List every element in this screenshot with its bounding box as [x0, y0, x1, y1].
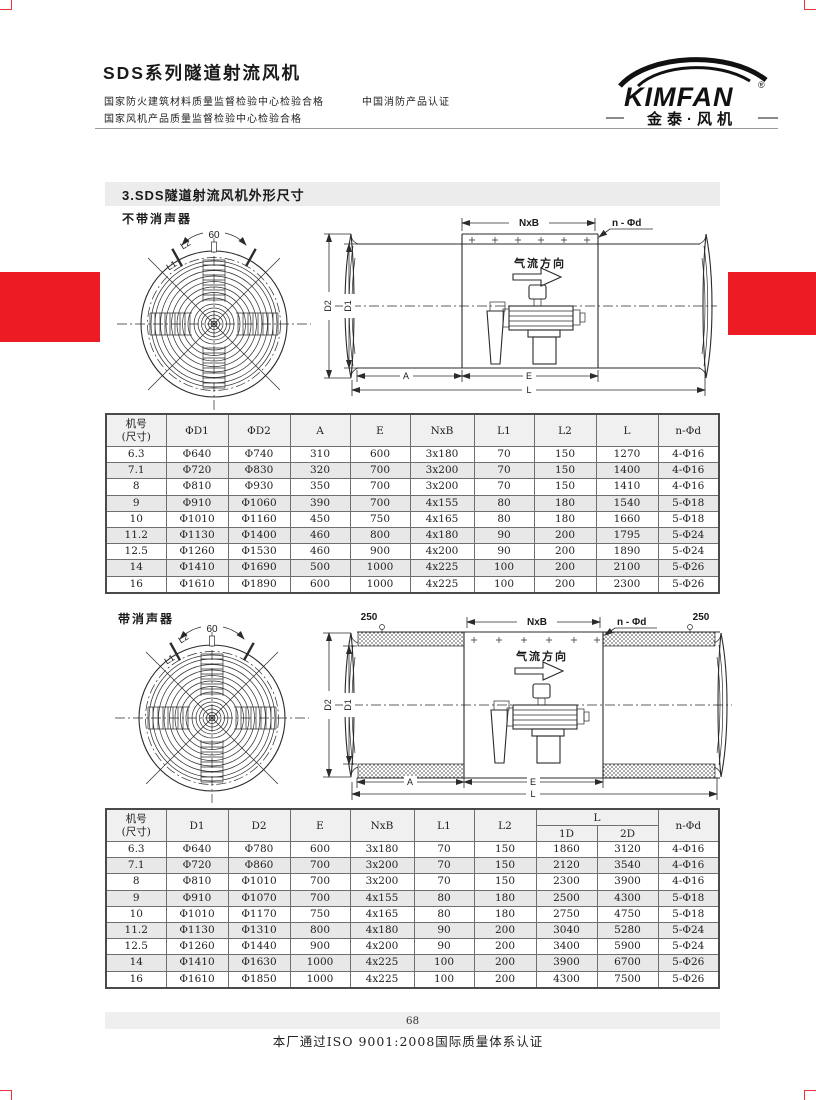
fan-front-view	[117, 230, 311, 411]
table-cell: 200	[474, 922, 536, 938]
table-cell: 3x200	[410, 463, 474, 479]
dim-d2-label: D2	[323, 699, 333, 711]
crop-mark-bottom-left	[0, 1090, 12, 1100]
table-cell: Φ1260	[166, 544, 228, 560]
table-header-row: 机号 (尺寸) ΦD1 ΦD2 A E NxB L1 L2 L n-Φd	[106, 414, 719, 447]
table-cell: 700	[290, 890, 350, 906]
table-cell: 90	[474, 544, 534, 560]
table-cell: Φ1630	[228, 955, 290, 971]
table-cell: 4x200	[350, 939, 414, 955]
table-row: 10Φ1010Φ11604507504x1658018016605-Φ18	[106, 511, 719, 527]
table-cell: Φ1060	[228, 495, 290, 511]
table-cell: 1270	[596, 447, 658, 463]
table-cell: 200	[474, 971, 536, 988]
table-cell: Φ1010	[166, 906, 228, 922]
table-cell: 1660	[596, 511, 658, 527]
table-cell: 8	[106, 874, 166, 890]
page-title: SDS系列隧道射流风机	[103, 60, 301, 85]
table-cell: 16	[106, 576, 166, 593]
header-divider	[95, 128, 778, 129]
table-cell: 4750	[597, 906, 658, 922]
table-cell: 7.1	[106, 858, 166, 874]
table-cell: 4x225	[350, 971, 414, 988]
table-cell: Φ810	[166, 874, 228, 890]
logo-chinese-text: 金泰·风机	[646, 110, 737, 128]
table-cell: 100	[414, 971, 474, 988]
dim-e-label: E	[530, 777, 536, 787]
table-cell: 11.2	[106, 922, 166, 938]
col-header-d2: D2	[228, 809, 290, 842]
table-cell: Φ1440	[228, 939, 290, 955]
table-row: 16Φ1610Φ185010004x225100200430075005-Φ26	[106, 971, 719, 988]
dim-e-label: E	[526, 371, 532, 381]
table-cell: 180	[534, 511, 596, 527]
drawing-with-silencer: NxB n - Φd 250 250 气流方向 D2 D1 A	[105, 608, 740, 803]
table-cell: 16	[106, 971, 166, 988]
table-cell: 460	[290, 544, 350, 560]
dim-nxb-label: NxB	[519, 218, 539, 229]
lifting-lug-right	[688, 625, 693, 630]
silencer-length-right-label: 250	[693, 612, 710, 623]
dim-d1-label: D1	[343, 300, 353, 312]
table-cell: 390	[290, 495, 350, 511]
table-cell: 9	[106, 495, 166, 511]
table-cell: Φ1610	[166, 971, 228, 988]
table-cell: 1890	[596, 544, 658, 560]
col-header-1d: 1D	[536, 826, 597, 842]
table-cell: 700	[290, 858, 350, 874]
table-cell: Φ910	[166, 495, 228, 511]
dim-l-label: L	[530, 789, 535, 799]
table-cell: 3x180	[410, 447, 474, 463]
silencer-lining-left-bottom	[358, 764, 464, 778]
table-cell: 5-Φ24	[658, 922, 719, 938]
table-cell: Φ1010	[228, 874, 290, 890]
table-cell: Φ1310	[228, 922, 290, 938]
fan-front-view-silencer	[115, 624, 309, 803]
col-header-l1: L1	[474, 414, 534, 447]
col-header-d2: ΦD2	[228, 414, 290, 447]
table-cell: 5-Φ26	[658, 560, 719, 576]
table-cell: 200	[534, 576, 596, 593]
table-row: 6.3Φ640Φ7403106003x1807015012704-Φ16	[106, 447, 719, 463]
table-cell: 310	[290, 447, 350, 463]
table-row: 10Φ1010Φ11707504x16580180275047505-Φ18	[106, 906, 719, 922]
table-cell: 4x225	[410, 560, 474, 576]
cert-china-fire-text: 中国消防产品认证	[362, 97, 450, 108]
col-header-e: E	[290, 809, 350, 842]
table-row: 9Φ910Φ10707004x15580180250043005-Φ18	[106, 890, 719, 906]
table-cell: 2100	[596, 560, 658, 576]
table-cell: 4-Φ16	[658, 858, 719, 874]
table-cell: 5-Φ26	[658, 955, 719, 971]
table-cell: 1410	[596, 479, 658, 495]
cert-fire-text: 国家防火建筑材料质量监督检验中心检验合格	[104, 97, 324, 108]
page-number-band: 68	[105, 1012, 720, 1029]
table-cell: 10	[106, 906, 166, 922]
table-row: 12.5Φ1260Φ14409004x20090200340059005-Φ24	[106, 939, 719, 955]
table-cell: 1000	[290, 971, 350, 988]
table-cell: Φ910	[166, 890, 228, 906]
fan-side-view: NxB n - Φd 气流方向 D2 D1 A E L	[322, 216, 717, 396]
section-title: 3.SDS隧道射流风机外形尺寸	[105, 185, 305, 204]
dim-nxb-label: NxB	[527, 617, 547, 628]
table-cell: 200	[534, 560, 596, 576]
table-cell: 180	[474, 906, 536, 922]
table-cell: 700	[350, 463, 410, 479]
table-cell: 1000	[350, 576, 410, 593]
silencer-lining-right-top	[603, 632, 715, 646]
table-cell: 150	[474, 874, 536, 890]
col-header-l2: L2	[534, 414, 596, 447]
kimfan-logo: KIMFAN ® 金泰·风机	[606, 50, 778, 130]
table-cell: 3900	[597, 874, 658, 890]
table-cell: 70	[414, 858, 474, 874]
table-cell: 100	[474, 560, 534, 576]
dimensions-table-with-silencer: 机号 (尺寸) D1 D2 E NxB L1 L2 L n-Φd 1D 2D 6…	[105, 808, 720, 989]
table-cell: 90	[414, 922, 474, 938]
table-cell: 5-Φ18	[658, 890, 719, 906]
table-cell: 3120	[597, 842, 658, 858]
table-cell: Φ740	[228, 447, 290, 463]
table-row: 8Φ810Φ9303507003x2007015014104-Φ16	[106, 479, 719, 495]
lifting-lug-left	[380, 625, 385, 630]
crop-mark-top-left	[0, 0, 12, 10]
table-cell: 3x200	[410, 479, 474, 495]
table-cell: 1000	[290, 955, 350, 971]
table-row: 7.1Φ720Φ8303207003x2007015014004-Φ16	[106, 463, 719, 479]
airflow-arrow	[513, 268, 561, 286]
table-header-row: 机号 (尺寸) D1 D2 E NxB L1 L2 L n-Φd	[106, 809, 719, 826]
dim-d2-label: D2	[323, 300, 333, 312]
table-cell: 4-Φ16	[658, 842, 719, 858]
silencer-lining-right-bottom	[603, 764, 715, 778]
table-row: 11.2Φ1130Φ13108004x18090200304052805-Φ24	[106, 922, 719, 938]
airflow-direction-label: 气流方向	[513, 256, 566, 270]
col-header-nxb: NxB	[350, 809, 414, 842]
table-cell: 4x200	[410, 544, 474, 560]
table-cell: 150	[474, 858, 536, 874]
table-row: 7.1Φ720Φ8607003x20070150212035404-Φ16	[106, 858, 719, 874]
table-cell: Φ1410	[166, 955, 228, 971]
table-cell: 80	[414, 890, 474, 906]
airflow-arrow	[515, 662, 563, 680]
certification-line-1: 国家防火建筑材料质量监督检验中心检验合格中国消防产品认证	[104, 93, 450, 108]
table-row: 14Φ1410Φ163010004x225100200390067005-Φ26	[106, 955, 719, 971]
col-header-n-phi-d: n-Φd	[658, 809, 719, 842]
table-cell: 2750	[536, 906, 597, 922]
table-cell: Φ1130	[166, 527, 228, 543]
table-cell: 750	[350, 511, 410, 527]
section-title-bar: 3.SDS隧道射流风机外形尺寸	[105, 182, 720, 206]
table-cell: Φ1400	[228, 527, 290, 543]
registered-mark: ®	[758, 80, 765, 90]
table-cell: Φ1850	[228, 971, 290, 988]
dimensions-table-without-silencer: 机号 (尺寸) ΦD1 ΦD2 A E NxB L1 L2 L n-Φd 6.3…	[105, 413, 720, 594]
table-cell: Φ930	[228, 479, 290, 495]
drawing-without-silencer: NxB n - Φd 气流方向 D2 D1 A E L	[105, 206, 720, 411]
table-row: 11.2Φ1130Φ14004608004x1809020017955-Φ24	[106, 527, 719, 543]
table-cell: 3900	[536, 955, 597, 971]
col-header-l2: L2	[474, 809, 536, 842]
table-cell: 1000	[350, 560, 410, 576]
table-cell: 4-Φ16	[658, 874, 719, 890]
cert-fan-text: 国家风机产品质量监督检验中心检验合格	[104, 114, 302, 125]
table-cell: 70	[414, 874, 474, 890]
table-cell: 600	[290, 842, 350, 858]
table-row: 12.5Φ1260Φ15304609004x2009020018905-Φ24	[106, 544, 719, 560]
table-cell: 2300	[596, 576, 658, 593]
table-row: 6.3Φ640Φ7806003x18070150186031204-Φ16	[106, 842, 719, 858]
table-cell: Φ1170	[228, 906, 290, 922]
dim-a-label: A	[403, 371, 409, 381]
table-cell: 450	[290, 511, 350, 527]
table-cell: 80	[414, 906, 474, 922]
table-cell: 80	[474, 511, 534, 527]
table-cell: 5-Φ26	[658, 971, 719, 988]
table-cell: 1540	[596, 495, 658, 511]
col-header-model: 机号 (尺寸)	[106, 809, 166, 842]
crop-mark-top-right	[804, 0, 816, 10]
table-cell: 200	[534, 527, 596, 543]
col-header-model: 机号 (尺寸)	[106, 414, 166, 447]
table-cell: 5-Φ18	[658, 906, 719, 922]
table-cell: 800	[350, 527, 410, 543]
col-header-l-group: L	[536, 809, 658, 826]
table-cell: 5-Φ18	[658, 495, 719, 511]
table-cell: Φ1410	[166, 560, 228, 576]
table-cell: 12.5	[106, 544, 166, 560]
table-cell: 200	[474, 955, 536, 971]
table-cell: 2120	[536, 858, 597, 874]
table-cell: Φ780	[228, 842, 290, 858]
table-cell: 14	[106, 955, 166, 971]
table-cell: 1860	[536, 842, 597, 858]
table-cell: 12.5	[106, 939, 166, 955]
table-body: 6.3Φ640Φ7806003x18070150186031204-Φ167.1…	[106, 842, 719, 988]
table-cell: 750	[290, 906, 350, 922]
table-row: 9Φ910Φ10603907004x1558018015405-Φ18	[106, 495, 719, 511]
table-cell: 6.3	[106, 842, 166, 858]
table-cell: 3400	[536, 939, 597, 955]
dim-a-label: A	[407, 777, 413, 787]
table-cell: 4-Φ16	[658, 447, 719, 463]
table-cell: 500	[290, 560, 350, 576]
col-header-n-phi-d: n-Φd	[658, 414, 719, 447]
table-cell: 4x225	[410, 576, 474, 593]
table-cell: 700	[350, 479, 410, 495]
table-cell: 6700	[597, 955, 658, 971]
motor-assembly	[491, 684, 589, 763]
col-header-e: E	[350, 414, 410, 447]
table-cell: 4-Φ16	[658, 463, 719, 479]
table-cell: Φ810	[166, 479, 228, 495]
table-cell: Φ1530	[228, 544, 290, 560]
table-cell: Φ720	[166, 463, 228, 479]
fan-side-view-silencer: NxB n - Φd 250 250 气流方向 D2 D1 A	[322, 612, 732, 800]
dim-l-label: L	[526, 385, 531, 395]
table-cell: 3x180	[350, 842, 414, 858]
silencer-lining-left-top	[358, 632, 464, 646]
table-cell: 180	[534, 495, 596, 511]
table-cell: 5-Φ26	[658, 576, 719, 593]
red-tab-left	[0, 272, 100, 342]
table-cell: 900	[350, 544, 410, 560]
col-header-d1: D1	[166, 809, 228, 842]
table-cell: 700	[350, 495, 410, 511]
table-cell: Φ1260	[166, 939, 228, 955]
table-cell: 11.2	[106, 527, 166, 543]
table-cell: 3x200	[350, 858, 414, 874]
col-header-2d: 2D	[597, 826, 658, 842]
table-cell: 7.1	[106, 463, 166, 479]
table-cell: 320	[290, 463, 350, 479]
table-cell: Φ1690	[228, 560, 290, 576]
table-cell: 3040	[536, 922, 597, 938]
col-header-a: A	[290, 414, 350, 447]
table-cell: 90	[414, 939, 474, 955]
silencer-length-left-label: 250	[361, 612, 378, 623]
table-cell: 5-Φ24	[658, 544, 719, 560]
table-cell: 5-Φ24	[658, 939, 719, 955]
table-cell: 70	[474, 447, 534, 463]
table-cell: 4x155	[410, 495, 474, 511]
table-cell: Φ830	[228, 463, 290, 479]
table-cell: 2500	[536, 890, 597, 906]
table-cell: 4-Φ16	[658, 479, 719, 495]
col-header-l1: L1	[414, 809, 474, 842]
table-cell: 80	[474, 495, 534, 511]
col-header-d1: ΦD1	[166, 414, 228, 447]
table-cell: 900	[290, 939, 350, 955]
table-cell: 70	[414, 842, 474, 858]
table-cell: Φ1010	[166, 511, 228, 527]
table-cell: 150	[534, 479, 596, 495]
table-cell: 4x165	[410, 511, 474, 527]
table-cell: 800	[290, 922, 350, 938]
table-cell: 200	[534, 544, 596, 560]
table-cell: 4300	[597, 890, 658, 906]
dim-d1-label: D1	[343, 699, 353, 711]
table-cell: 600	[290, 576, 350, 593]
table-cell: 460	[290, 527, 350, 543]
table-cell: 3x200	[350, 874, 414, 890]
table-cell: 4x155	[350, 890, 414, 906]
table-cell: 200	[474, 939, 536, 955]
iso-certification-text: 本厂通过ISO 9001:2008国际质量体系认证	[0, 1031, 816, 1050]
table-cell: 100	[414, 955, 474, 971]
table-cell: 4x225	[350, 955, 414, 971]
table-cell: 4x165	[350, 906, 414, 922]
table-cell: 600	[350, 447, 410, 463]
table-cell: Φ1070	[228, 890, 290, 906]
table-cell: 2300	[536, 874, 597, 890]
table-cell: 70	[474, 479, 534, 495]
table-cell: 9	[106, 890, 166, 906]
table-cell: Φ860	[228, 858, 290, 874]
table-cell: 4x180	[410, 527, 474, 543]
table-cell: Φ1610	[166, 576, 228, 593]
table-cell: 100	[474, 576, 534, 593]
dim-n-phi-d-label: n - Φd	[612, 218, 641, 229]
table-cell: 5280	[597, 922, 658, 938]
table-cell: 4x180	[350, 922, 414, 938]
table-cell: 350	[290, 479, 350, 495]
table-cell: 5-Φ18	[658, 511, 719, 527]
table-cell: Φ640	[166, 842, 228, 858]
certification-line-2: 国家风机产品质量监督检验中心检验合格	[104, 110, 302, 125]
table-cell: 1400	[596, 463, 658, 479]
table-cell: 5900	[597, 939, 658, 955]
table-cell: Φ1130	[166, 922, 228, 938]
table-cell: 8	[106, 479, 166, 495]
motor-assembly	[487, 285, 585, 364]
table-cell: 1795	[596, 527, 658, 543]
table-cell: 150	[534, 463, 596, 479]
table-row: 16Φ1610Φ189060010004x22510020023005-Φ26	[106, 576, 719, 593]
table-cell: 70	[474, 463, 534, 479]
table-body: 6.3Φ640Φ7403106003x1807015012704-Φ167.1Φ…	[106, 447, 719, 593]
col-header-nxb: NxB	[410, 414, 474, 447]
table-cell: 3540	[597, 858, 658, 874]
table-cell: 10	[106, 511, 166, 527]
table-cell: 4300	[536, 971, 597, 988]
table-cell: Φ720	[166, 858, 228, 874]
table-cell: 6.3	[106, 447, 166, 463]
page-number: 68	[406, 1015, 419, 1027]
table-cell: Φ1160	[228, 511, 290, 527]
red-tab-right	[728, 272, 816, 335]
logo-brand-text: KIMFAN	[624, 82, 734, 112]
table-cell: 5-Φ24	[658, 527, 719, 543]
table-cell: 700	[290, 874, 350, 890]
catalog-page: SDS系列隧道射流风机 国家防火建筑材料质量监督检验中心检验合格中国消防产品认证…	[0, 0, 816, 1100]
table-cell: 90	[474, 527, 534, 543]
table-cell: 7500	[597, 971, 658, 988]
table-cell: 180	[474, 890, 536, 906]
table-cell: 14	[106, 560, 166, 576]
table-row: 8Φ810Φ10107003x20070150230039004-Φ16	[106, 874, 719, 890]
table-cell: 150	[534, 447, 596, 463]
table-cell: Φ640	[166, 447, 228, 463]
crop-mark-bottom-right	[804, 1090, 816, 1100]
airflow-direction-label: 气流方向	[515, 649, 568, 663]
table-row: 14Φ1410Φ169050010004x22510020021005-Φ26	[106, 560, 719, 576]
col-header-l: L	[596, 414, 658, 447]
table-cell: 150	[474, 842, 536, 858]
dim-n-phi-d-label: n - Φd	[617, 617, 646, 628]
table-cell: Φ1890	[228, 576, 290, 593]
